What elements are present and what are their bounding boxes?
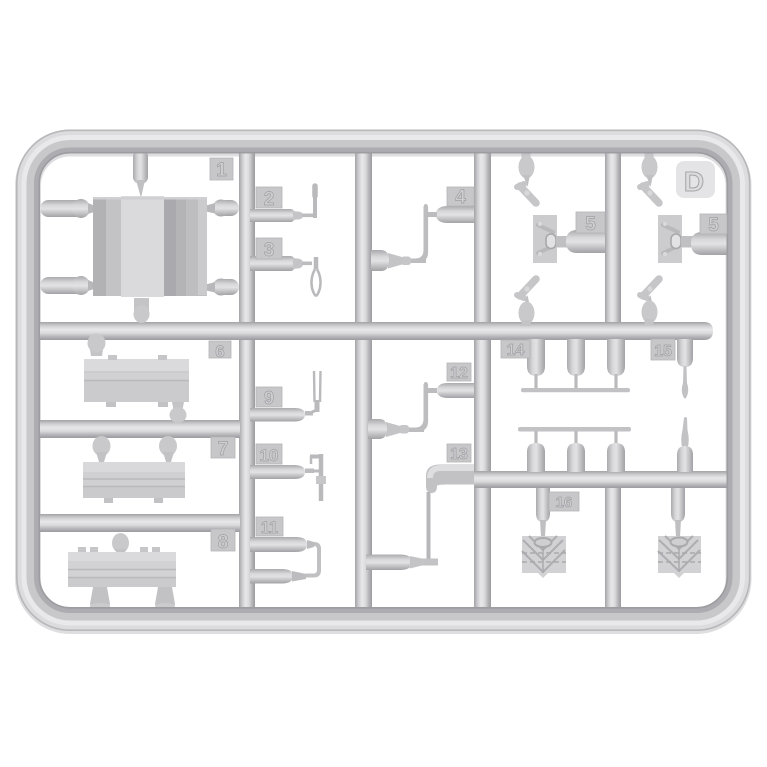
svg-text:7: 7 bbox=[218, 439, 229, 460]
svg-text:10: 10 bbox=[260, 446, 279, 465]
svg-text:9: 9 bbox=[264, 388, 274, 408]
svg-text:14: 14 bbox=[507, 342, 525, 359]
svg-text:5: 5 bbox=[585, 214, 596, 235]
svg-text:3: 3 bbox=[264, 240, 275, 261]
svg-text:4: 4 bbox=[455, 187, 466, 208]
svg-text:5: 5 bbox=[708, 215, 719, 236]
svg-text:2: 2 bbox=[264, 189, 275, 210]
svg-text:11: 11 bbox=[261, 519, 278, 537]
svg-text:D: D bbox=[684, 166, 704, 197]
svg-text:13: 13 bbox=[450, 446, 468, 463]
svg-text:8: 8 bbox=[218, 532, 229, 553]
svg-text:1: 1 bbox=[216, 160, 227, 181]
svg-text:12: 12 bbox=[450, 365, 468, 382]
svg-text:15: 15 bbox=[654, 343, 672, 360]
svg-text:6: 6 bbox=[215, 342, 224, 361]
svg-text:16: 16 bbox=[556, 494, 573, 511]
